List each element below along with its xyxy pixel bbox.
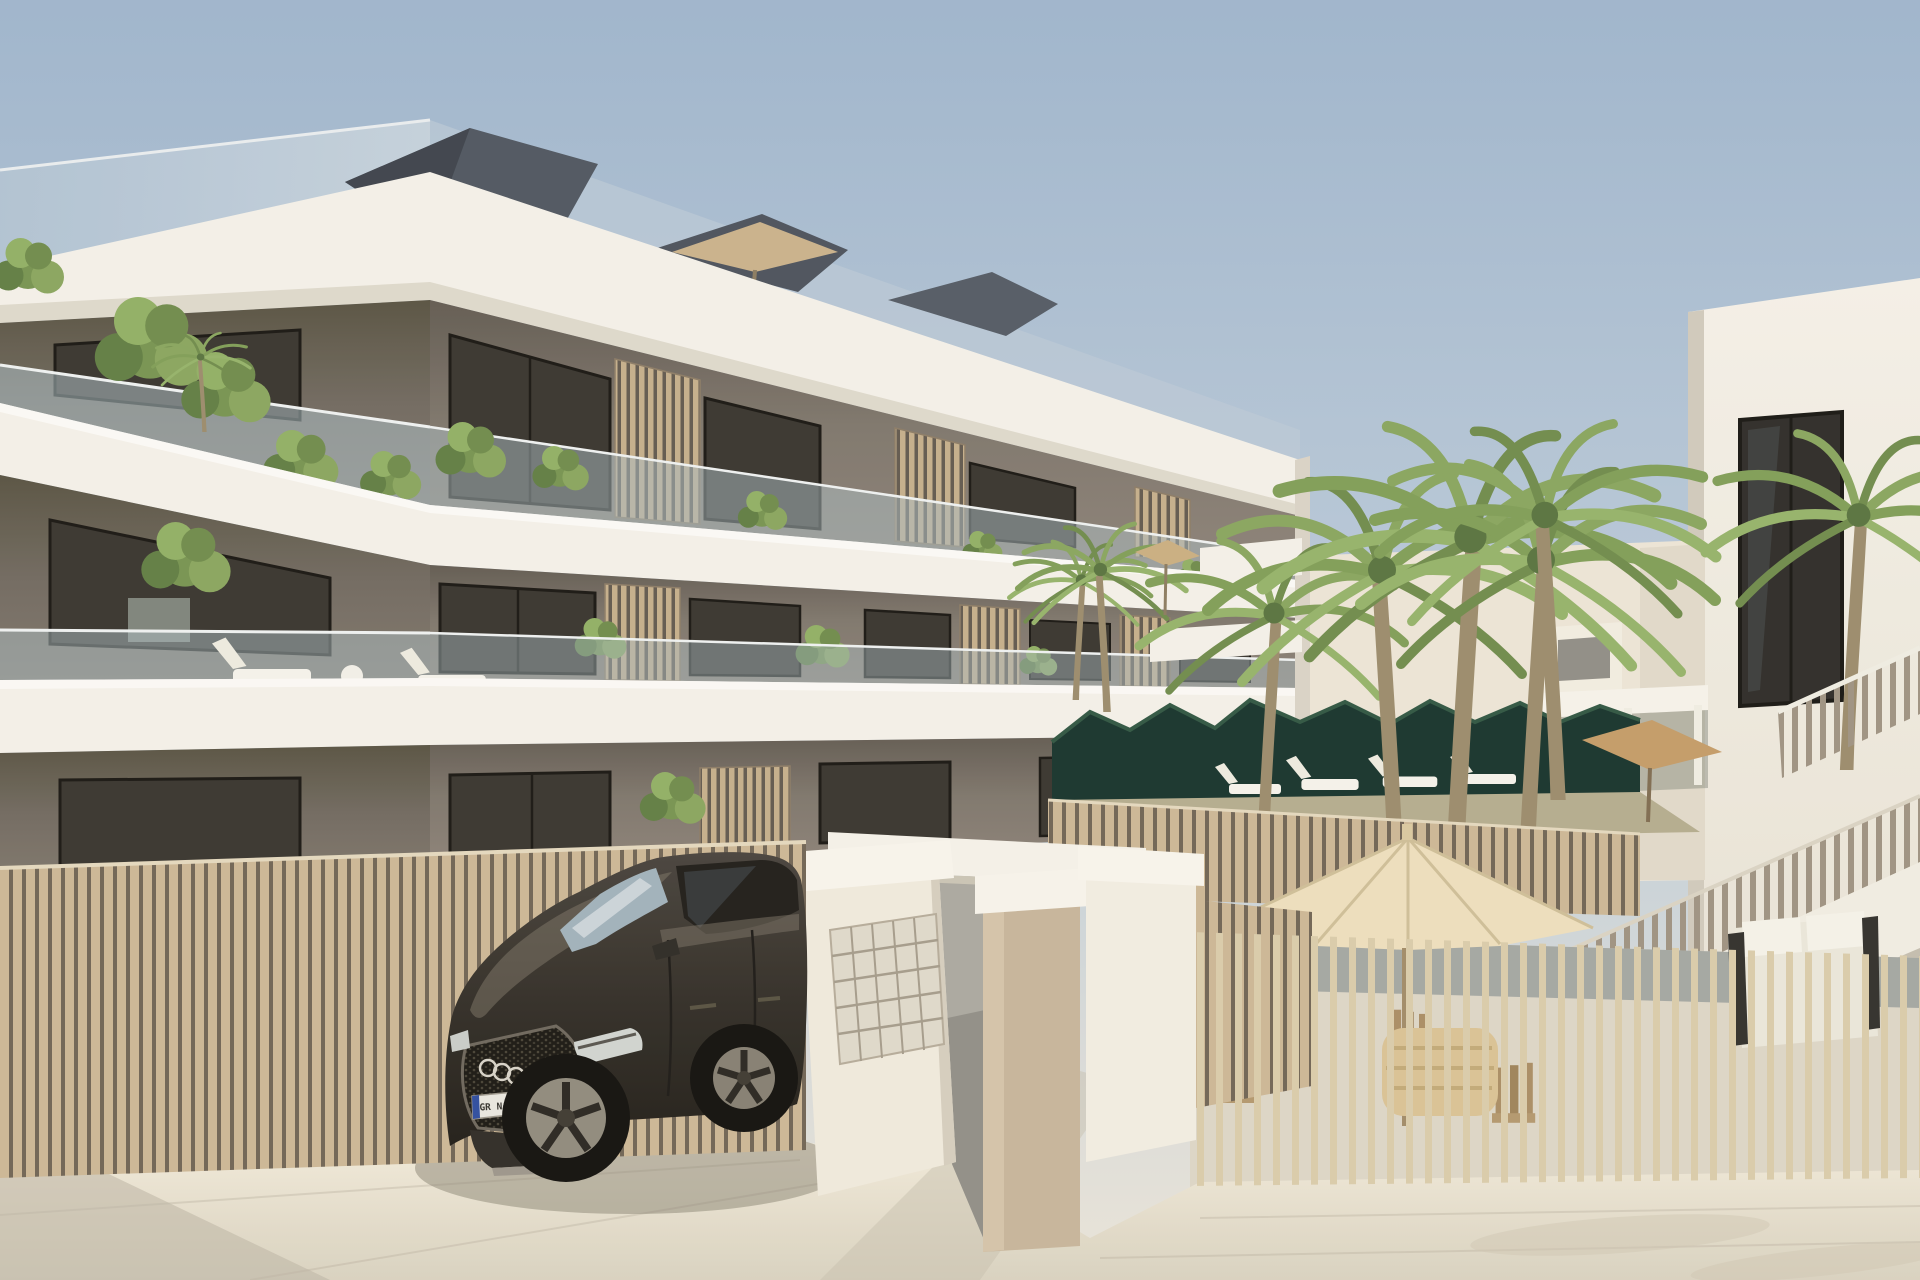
render-canvas: GR NA 0740 <box>0 0 1920 1280</box>
warm-light-overlay <box>0 0 1920 1280</box>
scene-architectural-render: GR NA 0740 <box>0 0 1920 1280</box>
